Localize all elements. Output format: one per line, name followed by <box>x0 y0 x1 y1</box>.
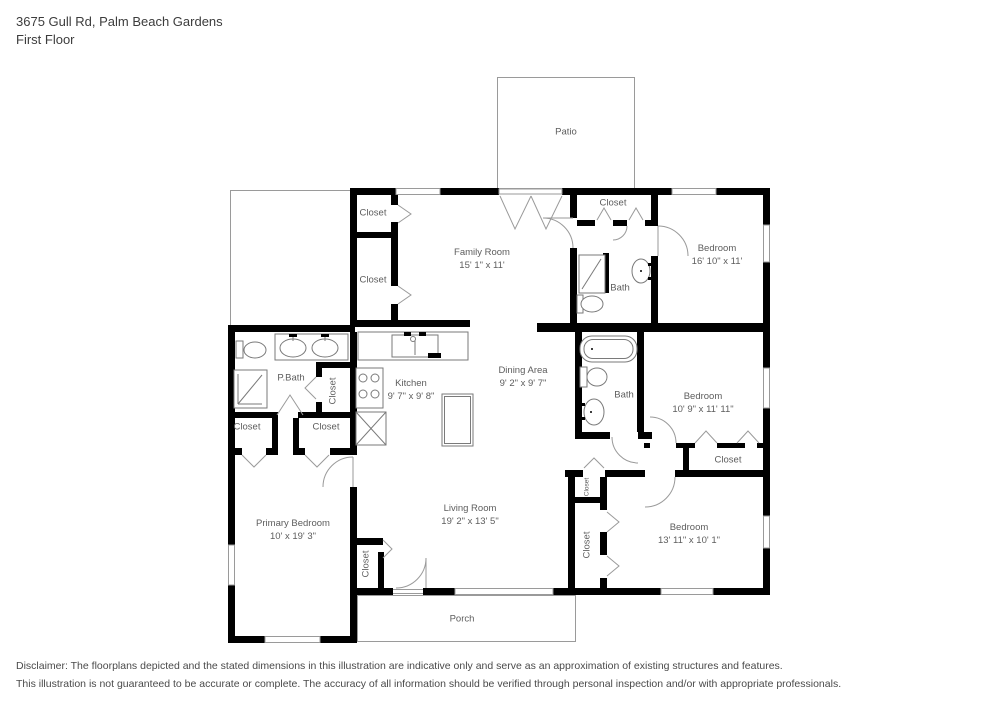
room-label-bedroom-mid-right: Bedroom10' 9" x 11' 11" <box>672 391 733 417</box>
room-label-primary-bath: P.Bath <box>277 373 304 386</box>
room-label-living-room: Living Room19' 2" x 13' 5" <box>441 503 498 529</box>
closet-label: Closet <box>360 208 387 221</box>
toilet-tank <box>580 367 587 387</box>
entry-door-gap <box>393 590 423 594</box>
toilet-bowl <box>581 296 603 312</box>
toilet-tank <box>236 341 243 358</box>
closet-label: Closet <box>582 532 595 559</box>
room-label-kitchen: Kitchen9' 7" x 9' 8" <box>388 378 435 404</box>
room-label-patio: Patio <box>555 127 577 140</box>
room-label-family-room: Family Room15' 1" x 11' <box>454 247 510 273</box>
closet-label: Closet <box>600 198 627 211</box>
room-label-bedroom-top-right: Bedroom16' 10" x 11' <box>692 243 743 269</box>
closet-label: Closet <box>361 551 374 578</box>
room-label-bath-top: Bath <box>610 283 630 296</box>
room-label-primary-bedroom: Primary Bedroom10' x 19' 3" <box>256 518 330 544</box>
room-label-porch: Porch <box>450 614 475 627</box>
closet-label: Closet <box>328 378 341 405</box>
floorplan-drawing <box>0 0 1000 707</box>
closet-label: Closet <box>313 422 340 435</box>
stove <box>356 368 383 408</box>
patio-door <box>499 189 562 229</box>
floorplan-page: 3675 Gull Rd, Palm Beach Gardens First F… <box>0 0 1000 707</box>
room-label-bedroom-bottom-right: Bedroom13' 11" x 10' 1" <box>658 522 720 548</box>
toilet-bowl <box>587 368 607 386</box>
floorplan-canvas: Patio Family Room15' 1" x 11' Bedroom16'… <box>0 0 1000 707</box>
closet-label: Closet <box>234 422 261 435</box>
sink <box>280 339 306 357</box>
closet-label: Closet <box>715 455 742 468</box>
disclaimer-line-2: This illustration is not guaranteed to b… <box>16 678 841 690</box>
garage-outline <box>231 191 351 330</box>
room-label-bath-middle: Bath <box>614 390 634 403</box>
toilet-bowl <box>244 342 266 358</box>
sink <box>312 339 338 357</box>
closet-label: Closet <box>360 275 387 288</box>
sink <box>584 399 604 425</box>
closet-label: Closet <box>584 478 593 496</box>
room-label-dining-area: Dining Area9' 2" x 9' 7" <box>498 365 547 391</box>
disclaimer-line-1: Disclaimer: The floorplans depicted and … <box>16 660 783 672</box>
